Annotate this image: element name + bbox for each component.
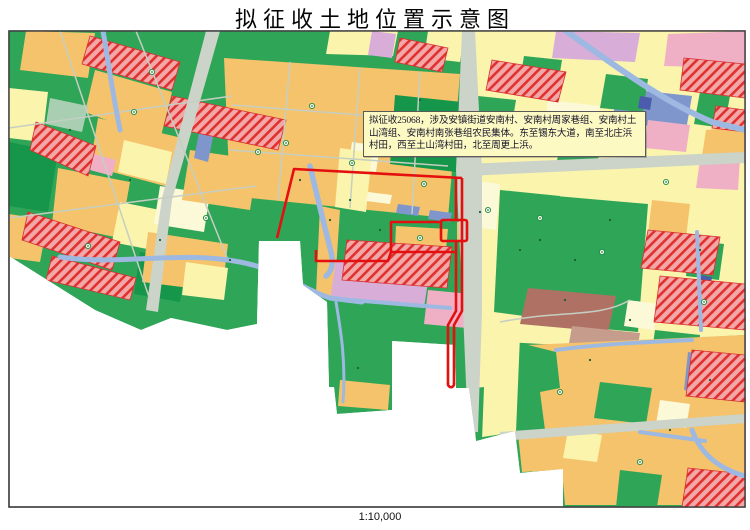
land-acquisition-map-page: 拟征收土地位置示意图 [0, 0, 750, 530]
scale-label: 1:10,000 [300, 511, 460, 523]
land-use-map [0, 0, 750, 530]
callout-text: 拟征收25068，涉及安镇街道安南村、安南村周家巷组、安南村土山湾组、安南村南张… [369, 115, 636, 151]
acquisition-callout: 拟征收25068，涉及安镇街道安南村、安南村周家巷组、安南村土山湾组、安南村南张… [363, 111, 646, 157]
